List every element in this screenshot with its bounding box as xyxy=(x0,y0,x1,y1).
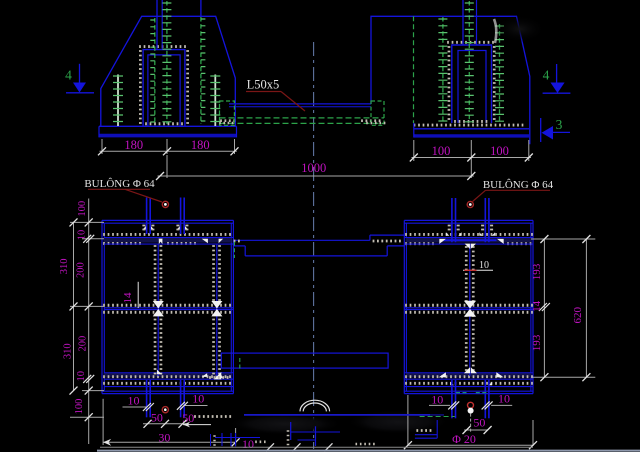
svg-text:50: 50 xyxy=(473,415,485,429)
svg-text:10: 10 xyxy=(192,392,204,406)
svg-text:BULÔNG Φ 64: BULÔNG Φ 64 xyxy=(483,179,554,191)
svg-text:180: 180 xyxy=(191,138,210,152)
svg-text:BULÔNG Φ 64: BULÔNG Φ 64 xyxy=(84,178,155,190)
svg-text:180: 180 xyxy=(124,138,143,152)
svg-text:200: 200 xyxy=(78,336,89,352)
svg-text:10: 10 xyxy=(498,392,510,406)
svg-text:10: 10 xyxy=(77,230,88,241)
svg-text:4: 4 xyxy=(543,68,550,83)
svg-text:10: 10 xyxy=(76,371,87,382)
svg-text:100: 100 xyxy=(74,399,85,415)
svg-text:10: 10 xyxy=(242,437,254,451)
svg-text:310: 310 xyxy=(63,343,74,359)
svg-text:Φ 20: Φ 20 xyxy=(452,432,476,446)
svg-text:14: 14 xyxy=(122,292,134,304)
svg-text:50: 50 xyxy=(151,411,163,425)
svg-text:10: 10 xyxy=(479,260,489,271)
svg-text:620: 620 xyxy=(572,306,584,323)
svg-text:3: 3 xyxy=(556,117,563,132)
svg-text:193: 193 xyxy=(531,334,543,351)
svg-text:100: 100 xyxy=(77,201,88,217)
svg-text:4: 4 xyxy=(65,68,72,83)
svg-text:10: 10 xyxy=(128,394,140,408)
svg-text:100: 100 xyxy=(490,144,509,158)
svg-text:193: 193 xyxy=(531,263,543,280)
svg-text:100: 100 xyxy=(432,144,451,158)
svg-text:200: 200 xyxy=(75,262,86,278)
svg-text:L50x5: L50x5 xyxy=(247,78,280,92)
svg-text:310: 310 xyxy=(59,259,70,275)
svg-text:14: 14 xyxy=(531,300,543,312)
svg-text:10: 10 xyxy=(431,393,443,407)
svg-text:1000: 1000 xyxy=(301,161,326,175)
